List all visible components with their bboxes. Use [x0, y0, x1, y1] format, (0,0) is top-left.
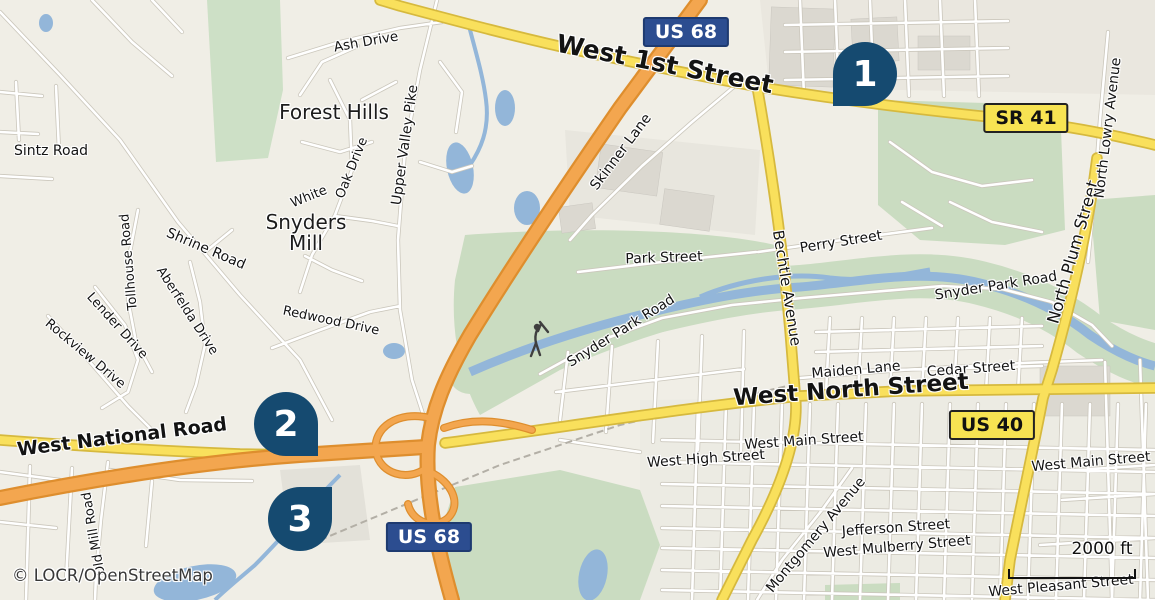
street-label-park-street: Park Street [625, 249, 703, 268]
route-badge-us68-top: US 68 [643, 17, 729, 47]
map-canvas: Ash Drive Forest Hills Sintz Road White … [0, 0, 1155, 600]
map-attribution: © LOCR/OpenStreetMap [12, 566, 213, 585]
place-label-snyders-mill: Snyders Mill [258, 212, 354, 254]
map-marker-1[interactable]: 1 [833, 42, 897, 106]
scale-bar-label: 2000 ft [1071, 539, 1132, 559]
map-marker-3[interactable]: 3 [268, 487, 332, 551]
place-label-forest-hills: Forest Hills [279, 100, 389, 124]
map-marker-2[interactable]: 2 [254, 392, 318, 456]
route-badge-us68-bottom: US 68 [386, 522, 472, 552]
marker-3-label: 3 [287, 499, 312, 540]
marker-1-label: 1 [852, 54, 877, 95]
street-label-sintz-road: Sintz Road [14, 143, 88, 159]
scale-bar [1008, 569, 1136, 579]
route-badge-us40: US 40 [949, 410, 1035, 440]
route-badge-sr41: SR 41 [983, 103, 1068, 133]
marker-2-label: 2 [273, 404, 298, 445]
